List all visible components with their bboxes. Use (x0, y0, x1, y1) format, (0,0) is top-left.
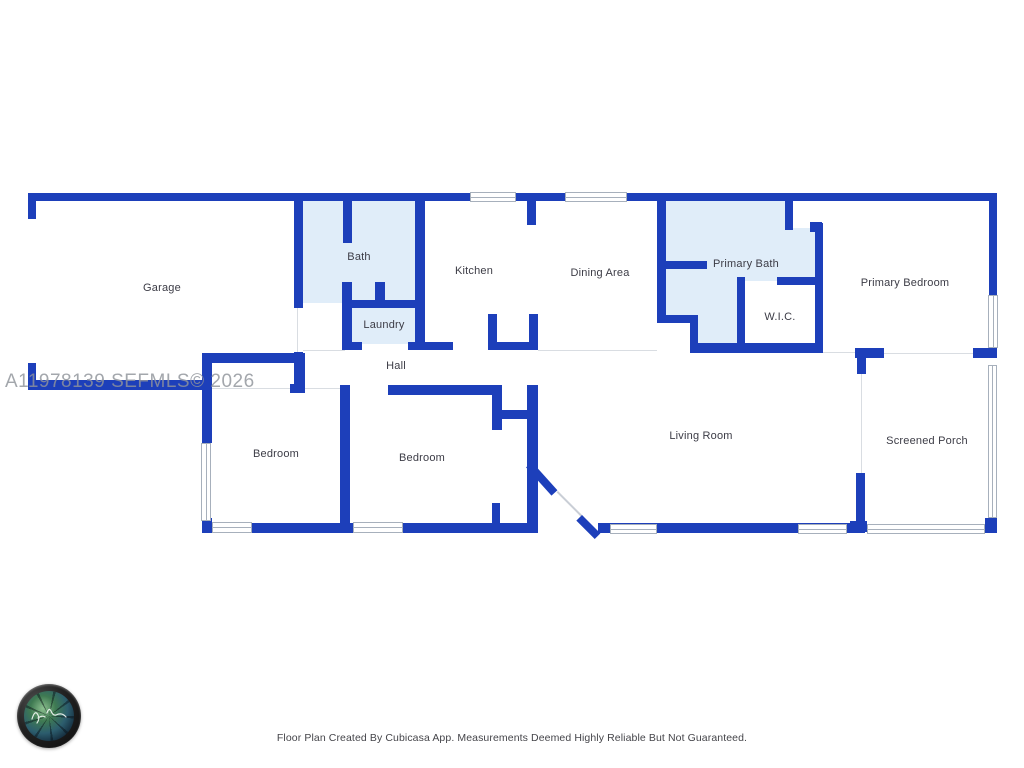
wall-segment (856, 473, 865, 528)
disclaimer-text: Floor Plan Created By Cubicasa App. Meas… (0, 732, 1024, 744)
wall-segment (488, 342, 538, 350)
room-label-laundry: Laundry (363, 319, 404, 331)
window (610, 524, 657, 534)
wall-segment (202, 353, 212, 443)
wall-segment (855, 348, 884, 358)
door-swing-line (557, 491, 584, 518)
window (201, 443, 211, 521)
mls-watermark: A11978139 SEFMLS© 2026 (5, 371, 255, 393)
floor-plan-canvas: Garage Bath Kitchen Laundry Hall Dining … (0, 0, 1024, 768)
boundary-line (861, 374, 862, 473)
wall-segment (690, 343, 823, 353)
wall-segment (408, 342, 430, 350)
wall-segment (815, 223, 823, 353)
boundary-line (297, 308, 298, 352)
wall-segment (343, 193, 352, 243)
boundary-line (538, 350, 657, 351)
entry-angled-wall (576, 515, 600, 539)
wall-segment (527, 385, 538, 532)
porch-screen (867, 524, 985, 534)
wall-segment (777, 277, 823, 285)
room-label-bath: Bath (347, 251, 370, 263)
room-label-hall: Hall (386, 360, 406, 372)
wall-segment (657, 261, 707, 269)
wall-segment (527, 193, 536, 225)
window (470, 192, 516, 202)
room-label-screened-porch: Screened Porch (886, 435, 968, 447)
room-label-garage: Garage (143, 282, 181, 294)
wall-segment (388, 385, 493, 395)
room-label-living-room: Living Room (669, 430, 732, 442)
room-label-primary-bath: Primary Bath (713, 258, 779, 270)
wall-segment (345, 342, 362, 350)
boundary-line (884, 353, 973, 354)
porch-screen (988, 365, 997, 518)
window (988, 295, 998, 348)
wall-segment (375, 282, 385, 304)
room-label-wic: W.I.C. (764, 311, 795, 323)
wall-segment (342, 282, 352, 304)
wall-segment (989, 193, 997, 295)
wall-segment (785, 193, 793, 230)
room-fill-bath (298, 197, 420, 303)
room-label-bedroom-middle: Bedroom (399, 452, 445, 464)
boundary-line (823, 352, 855, 353)
wall-segment (294, 193, 303, 308)
wall-segment (494, 410, 529, 419)
wall-segment (202, 353, 305, 363)
room-label-kitchen: Kitchen (455, 265, 493, 277)
room-label-dining-area: Dining Area (570, 267, 629, 279)
room-label-bedroom-left: Bedroom (253, 448, 299, 460)
wall-segment (492, 385, 502, 430)
wall-segment (340, 385, 350, 532)
signature-squiggle (24, 691, 74, 741)
lens-glass (24, 691, 74, 741)
wall-segment (985, 518, 997, 533)
wall-segment (28, 193, 36, 219)
wall-segment (492, 503, 500, 525)
wall-segment (973, 348, 997, 358)
camera-lens-logo (17, 684, 81, 748)
window (212, 522, 252, 533)
wall-segment (657, 193, 666, 323)
wall-segment (857, 358, 866, 374)
wall-segment (290, 384, 305, 393)
boundary-line (303, 350, 345, 351)
window (565, 192, 627, 202)
wall-segment (430, 342, 453, 350)
wall-segment (737, 277, 745, 353)
window (798, 524, 847, 534)
window (353, 522, 403, 533)
room-label-primary-bedroom: Primary Bedroom (861, 277, 950, 289)
wall-segment (415, 193, 425, 350)
